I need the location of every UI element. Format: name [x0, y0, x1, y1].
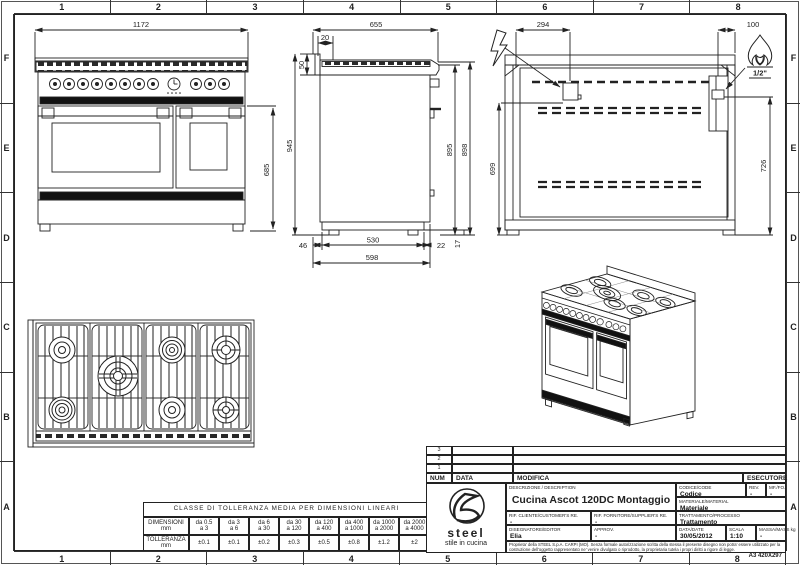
front-width-dim: 1172: [133, 20, 149, 29]
zone-row: E: [787, 104, 800, 194]
tol-value: ±0.2: [249, 535, 279, 551]
tol-value: ±0.3: [279, 535, 309, 551]
dim-range: da 0.5a 3: [189, 517, 219, 535]
logo-cell: steel stile in cucina: [426, 483, 506, 553]
back-gas-height-dim: 726: [759, 160, 768, 173]
rif-fornitore-cell: RIF. FORNITORE/SUPPLIER'S RE.-: [591, 511, 676, 525]
back-electric-x-dim: 294: [537, 20, 550, 29]
tolerance-table: CLASSE DI TOLLERANZA MEDIA PER DIMENSION…: [143, 502, 430, 551]
back-view: 294 100 699 726 1/2": [483, 18, 788, 263]
zone-col: 1: [14, 0, 111, 13]
zone-strip-left: F E D C B A: [0, 14, 14, 551]
rev-row-num: 3: [426, 446, 452, 455]
massa-cell: MASSA/MASS kg-: [756, 525, 786, 541]
side-base-depth-dim: 598: [366, 253, 379, 262]
side-body-height-dim: 895: [445, 144, 454, 157]
rif-cliente-cell: RIF. CLIENTE/CUSTOMER'S RE.-: [506, 511, 591, 525]
zone-col: 4: [304, 552, 401, 565]
zone-row: C: [787, 283, 800, 373]
zone-row: B: [0, 373, 13, 463]
zone-col: 6: [497, 552, 594, 565]
side-foot-height-dim: 17: [453, 240, 462, 248]
zone-col: 6: [497, 0, 594, 13]
technical-drawing-sheet: 1 2 3 4 5 6 7 8 1 2 3 4 5 6 7 8 A3 420X2…: [0, 0, 800, 565]
side-front-gap-dim: 46: [299, 241, 307, 250]
dim-range: da 30a 120: [279, 517, 309, 535]
disegnatore-cell: DISEGNATORE/EDITORElia: [506, 525, 591, 541]
tol-value: ±0.1: [219, 535, 249, 551]
front-view: 1172 685: [28, 18, 288, 243]
zone-col: 2: [111, 552, 208, 565]
zone-col: 7: [593, 552, 690, 565]
zone-strip-top: 1 2 3 4 5 6 7 8: [14, 0, 786, 14]
zone-row: A: [787, 462, 800, 551]
burners: [49, 336, 240, 423]
isometric-view: [495, 256, 755, 456]
rev-row-num: 2: [426, 455, 452, 464]
zone-row: D: [0, 193, 13, 283]
logo-tagline: stile in cucina: [427, 540, 505, 547]
dim-range: da 400a 1000: [339, 517, 369, 535]
electrical-box: [563, 83, 578, 100]
rev-cell: REV.-: [746, 483, 766, 497]
zone-strip-bottom: 1 2 3 4 5 6 7 8 A3 420X297: [14, 551, 786, 565]
side-back-gap-dim: 22: [437, 241, 445, 250]
drawing-title: Cucina Ascot 120DC Montaggio: [507, 494, 675, 506]
description-cell: DESCRIZIONE / DESCRIPTION Cucina Ascot 1…: [506, 483, 676, 511]
sheet-format-label: A3 420X297: [749, 553, 782, 559]
rev-row-num: 1: [426, 464, 452, 473]
zone-col: 3: [207, 552, 304, 565]
zone-col: 2: [111, 0, 208, 13]
legal-cell: Proprieta' della STEEL S.p.A. CARPI (MO)…: [506, 541, 786, 553]
rev-header-data: DATA: [452, 473, 513, 483]
tol-value: ±0.1: [189, 535, 219, 551]
rev-header-esecutore: ESECUTORE: [743, 473, 786, 483]
tol-value: ±1.2: [369, 535, 399, 551]
gas-connection-panel: [709, 76, 728, 131]
dim-range: da 3a 6: [219, 517, 249, 535]
logo-text: steel: [427, 526, 505, 540]
dim-range: da 1000a 2000: [369, 517, 399, 535]
side-top-offset-dim: 20: [321, 33, 329, 42]
side-back-height-dim: 898: [460, 144, 469, 157]
zone-row: D: [787, 193, 800, 283]
legal-text: Proprieta' della STEEL S.p.A. CARPI (MO)…: [509, 543, 783, 553]
zone-strip-right: F E D C B A: [786, 14, 800, 551]
zone-row: E: [0, 104, 13, 194]
tol-row-label: TOLLERANZAmm: [143, 535, 189, 551]
mf-cell: MF./FO.-: [766, 483, 786, 497]
zone-col: 8: [690, 0, 786, 13]
side-depth-dim: 655: [370, 20, 383, 29]
zone-col: 1: [14, 552, 111, 565]
dim-range: da 120a 400: [309, 517, 339, 535]
approv-cell: APPROV.-: [591, 525, 676, 541]
back-gas-x-dim: 100: [747, 20, 760, 29]
zone-row: F: [0, 14, 13, 104]
materiale-cell: MATERIALE/MATERIALMateriale: [676, 497, 786, 511]
zone-row: A: [0, 462, 13, 551]
side-splash-dim: 50: [297, 61, 306, 69]
codice-cell: CODICE/CODECodice: [676, 483, 746, 497]
front-door-height-dim: 685: [262, 164, 271, 177]
side-view: 655 20 50 945 895 898 46 530 22 598 17: [288, 18, 488, 278]
zone-col: 5: [401, 0, 498, 13]
tol-value: ±0.5: [309, 535, 339, 551]
zone-col: 4: [304, 0, 401, 13]
rev-header-modifica: MODIFICA: [513, 473, 743, 483]
rev-header-num: NUM: [426, 473, 452, 483]
tolerance-table-title: CLASSE DI TOLLERANZA MEDIA PER DIMENSION…: [143, 502, 430, 517]
zone-col: 3: [207, 0, 304, 13]
zone-col: 7: [594, 0, 691, 13]
scala-cell: SCALA1:10: [726, 525, 756, 541]
date-cell: DATA/DATE30/05/2012: [676, 525, 726, 541]
zone-row: C: [0, 283, 13, 373]
dim-range: da 6a 30: [249, 517, 279, 535]
trattamento-cell: TRATTAMENTO/PROCESSOTrattamento: [676, 511, 786, 525]
title-block: 3 2 1 NUM DATA MODIFICA ESECUTORE steel …: [426, 446, 786, 551]
zone-row: F: [787, 14, 800, 104]
gas-size-label: 1/2": [753, 69, 767, 78]
back-electric-height-dim: 699: [488, 163, 497, 176]
zone-row: B: [787, 373, 800, 463]
side-feet-span-dim: 530: [367, 236, 380, 245]
side-total-height-dim: 945: [285, 140, 294, 153]
top-view: [22, 312, 267, 462]
tol-value: ±0.8: [339, 535, 369, 551]
dim-row-label: DIMENSIONImm: [143, 517, 189, 535]
